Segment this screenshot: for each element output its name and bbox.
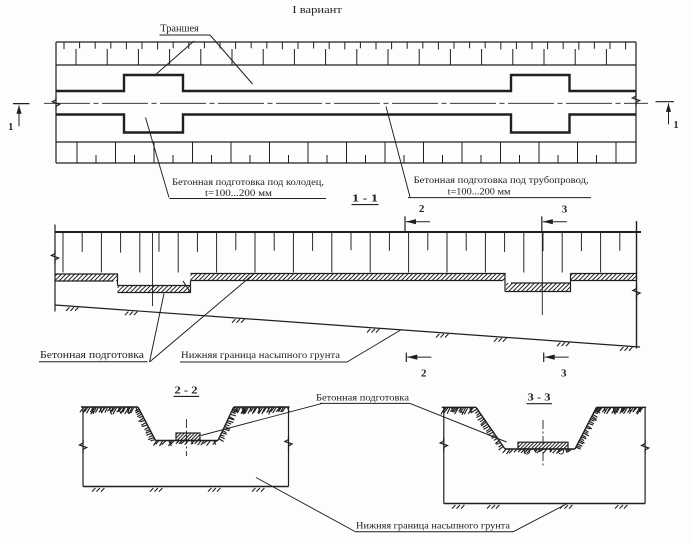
svg-text:3: 3 bbox=[561, 368, 567, 380]
svg-text:3: 3 bbox=[562, 204, 568, 216]
svg-text:1: 1 bbox=[674, 120, 679, 131]
svg-text:1 - 1: 1 - 1 bbox=[352, 193, 378, 204]
svg-text:t=100...200 мм: t=100...200 мм bbox=[448, 187, 511, 197]
svg-text:Траншея: Траншея bbox=[160, 24, 199, 35]
svg-text:Бетонная подготовка: Бетонная подготовка bbox=[316, 394, 410, 404]
svg-text:2: 2 bbox=[421, 368, 427, 380]
svg-text:I вариант: I вариант bbox=[292, 5, 342, 16]
svg-text:Бетонная подготовка под колоде: Бетонная подготовка под колодец, bbox=[172, 178, 324, 188]
svg-text:Нижняя граница насыпного грунт: Нижняя граница насыпного грунта bbox=[181, 351, 341, 361]
svg-text:Бетонная подготовка: Бетонная подготовка bbox=[40, 350, 145, 361]
svg-text:Нижняя граница насыпного грунт: Нижняя граница насыпного грунта bbox=[356, 522, 511, 532]
svg-text:t=100...200 мм: t=100...200 мм bbox=[205, 189, 272, 199]
svg-text:3 - 3: 3 - 3 bbox=[528, 393, 551, 404]
svg-text:1: 1 bbox=[8, 122, 13, 133]
svg-text:2: 2 bbox=[419, 203, 425, 215]
svg-text:Бетонная подготовка под трубоп: Бетонная подготовка под трубопровод, bbox=[414, 175, 589, 186]
svg-text:2 - 2: 2 - 2 bbox=[175, 385, 198, 396]
